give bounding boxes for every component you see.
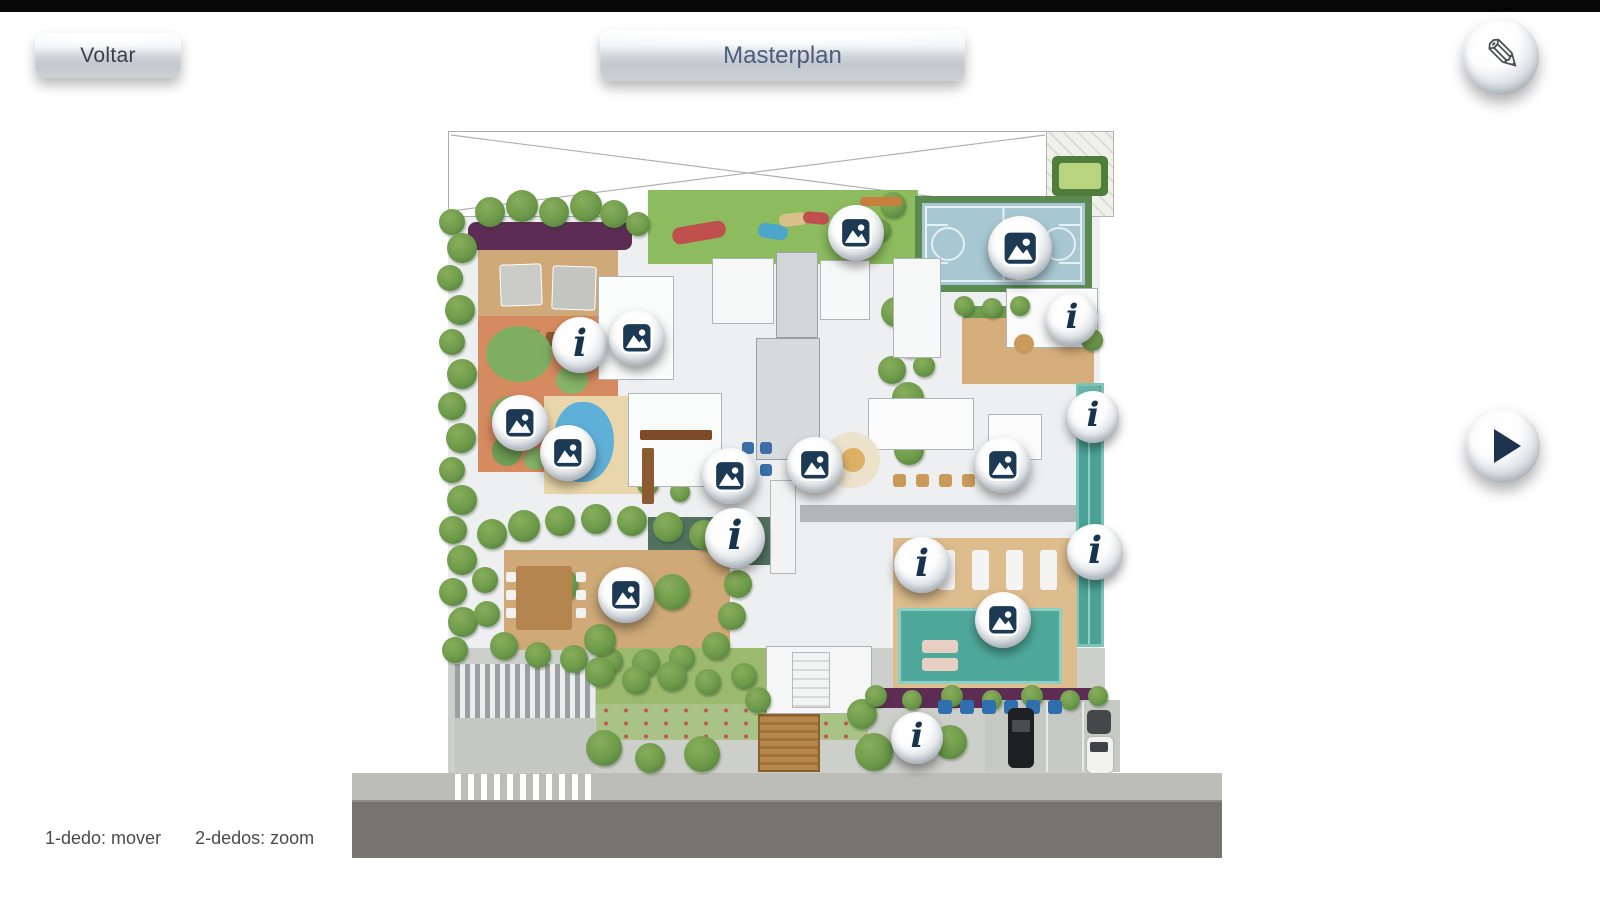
plan-furniture: [868, 398, 974, 450]
play-icon: [1494, 429, 1521, 463]
tree: [447, 485, 477, 515]
tree: [570, 190, 602, 222]
tree: [442, 637, 468, 663]
tree: [477, 519, 507, 549]
plan-furniture: [1006, 550, 1023, 590]
page-title-bar: Masterplan: [600, 30, 965, 81]
tree: [1060, 690, 1080, 710]
plan-furniture: [1012, 720, 1030, 732]
plan-furniture: [551, 265, 597, 311]
marker-info-pool-deck[interactable]: i: [894, 537, 950, 593]
tree: [439, 516, 467, 544]
driveway-left: [455, 718, 595, 772]
gesture-hint: 1-dedo: mover2-dedos: zoom: [45, 828, 314, 849]
plan-furniture: [820, 260, 870, 320]
plan-furniture: [506, 608, 516, 618]
marker-info-lap-pool-mid[interactable]: i: [1067, 524, 1123, 580]
hint-pan: 1-dedo: mover: [45, 828, 161, 848]
plan-furniture: [1090, 742, 1108, 752]
marker-photo-lounge-east[interactable]: [787, 437, 843, 493]
app-screen: Voltar Masterplan ✎: [0, 0, 1600, 900]
tree: [475, 197, 505, 227]
tree: [447, 233, 477, 263]
tree: [855, 733, 893, 771]
marker-info-entrance[interactable]: i: [891, 712, 943, 764]
plan-furniture: [776, 252, 818, 338]
tree: [439, 209, 465, 235]
tree: [954, 296, 974, 316]
tree: [653, 512, 683, 542]
marker-info-court-room[interactable]: i: [1046, 293, 1098, 345]
marker-photo-bbq-deck[interactable]: [598, 567, 654, 623]
plan-furniture: [1082, 702, 1084, 772]
tree: [731, 663, 757, 689]
tree: [745, 687, 771, 713]
tree: [445, 295, 475, 325]
tree: [525, 642, 551, 668]
plan-furniture: [916, 474, 929, 487]
hint-zoom: 2-dedos: zoom: [195, 828, 314, 848]
tree: [684, 736, 720, 772]
tree: [695, 669, 721, 695]
tree: [635, 743, 665, 773]
plan-furniture: [770, 480, 796, 574]
tree: [584, 624, 616, 656]
tree: [878, 356, 906, 384]
plan-furniture: [1014, 334, 1034, 354]
tree: [439, 457, 465, 483]
rooftop-garden: [1052, 156, 1108, 196]
tree: [447, 545, 477, 575]
plan-furniture: [938, 700, 952, 714]
marker-photo-playground[interactable]: [492, 395, 548, 451]
plan-furniture: [893, 258, 941, 358]
tree: [718, 602, 746, 630]
plan-furniture: [576, 590, 586, 600]
tree: [506, 190, 538, 222]
tree: [622, 666, 650, 694]
plan-furniture: [640, 430, 712, 440]
plan-furniture: [516, 566, 572, 630]
plan-furniture: [893, 474, 906, 487]
plan-furniture: [922, 640, 958, 653]
tree: [438, 392, 466, 420]
marker-photo-main-pool[interactable]: [975, 592, 1031, 648]
plan-furniture: [939, 474, 952, 487]
marker-photo-lounge-west[interactable]: [702, 448, 758, 504]
plan-furniture: [960, 700, 974, 714]
tree: [617, 506, 647, 536]
marker-photo-kids-pool[interactable]: [540, 425, 596, 481]
tree: [439, 578, 467, 606]
plan-furniture: [1046, 702, 1048, 772]
page-title: Masterplan: [723, 42, 842, 70]
tree: [654, 574, 690, 610]
plan-furniture: [486, 326, 552, 382]
tree: [902, 690, 922, 710]
tree: [437, 265, 463, 291]
tree: [724, 570, 752, 598]
plan-furniture: [506, 590, 516, 600]
plan-furniture: [1008, 708, 1034, 768]
tree: [560, 645, 588, 673]
plan-furniture: [803, 211, 830, 225]
plan-furniture: [1048, 700, 1062, 714]
marker-photo-bar[interactable]: [975, 437, 1031, 493]
plan-furniture: [506, 572, 516, 582]
tree: [1088, 686, 1108, 706]
tree: [446, 423, 476, 453]
tree: [702, 632, 730, 660]
edit-button[interactable]: ✎: [1463, 19, 1539, 95]
tree: [472, 567, 498, 593]
tree: [913, 355, 935, 377]
lobby-skylight: [792, 652, 830, 708]
tree: [539, 197, 569, 227]
plan-furniture: [576, 608, 586, 618]
play-button[interactable]: [1466, 409, 1540, 483]
back-button-label: Voltar: [80, 44, 136, 68]
marker-info-lap-pool-top[interactable]: i: [1067, 391, 1119, 443]
tree: [600, 200, 628, 228]
plan-furniture: [982, 700, 996, 714]
plan-furniture: [760, 442, 772, 454]
tree: [586, 730, 622, 766]
marker-photo-play-lawn[interactable]: [828, 205, 884, 261]
marker-photo-reading-room[interactable]: [609, 310, 665, 366]
tree: [865, 685, 887, 707]
plan-furniture: [800, 505, 1076, 522]
plan-furniture: [860, 197, 902, 206]
tree: [474, 601, 500, 627]
plan-furniture: [922, 658, 958, 671]
tree: [508, 510, 540, 542]
tree: [626, 212, 650, 236]
plan-furniture: [1040, 550, 1057, 590]
marker-photo-sports-court[interactable]: [988, 216, 1052, 280]
plan-furniture: [962, 474, 975, 487]
tree: [982, 298, 1002, 318]
marker-info-central-patio[interactable]: i: [705, 508, 765, 568]
tree: [585, 657, 615, 687]
marker-info-toys-room[interactable]: i: [552, 317, 608, 373]
tree: [439, 329, 465, 355]
crosswalk: [455, 774, 597, 800]
entrance-pergola: [758, 714, 820, 772]
street: [352, 800, 1222, 858]
tree: [447, 359, 477, 389]
pencil-icon: ✎: [1485, 30, 1522, 81]
plan-furniture: [972, 550, 989, 590]
plan-furniture: [1087, 710, 1111, 734]
plan-furniture: [760, 464, 772, 476]
tree: [545, 506, 575, 536]
back-button[interactable]: Voltar: [35, 33, 181, 78]
plan-furniture: [576, 572, 586, 582]
top-letterbox-bar: [0, 0, 1600, 12]
plan-furniture: [841, 448, 865, 472]
tree: [657, 661, 687, 691]
plan-furniture: [712, 258, 774, 324]
plan-furniture: [499, 263, 542, 306]
tree: [1010, 296, 1030, 316]
tree: [581, 504, 611, 534]
plan-furniture: [642, 448, 654, 504]
tree: [490, 632, 518, 660]
